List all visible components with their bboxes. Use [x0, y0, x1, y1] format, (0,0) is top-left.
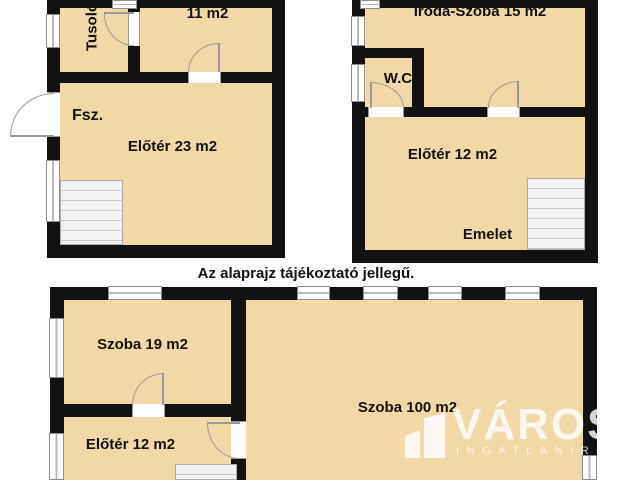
wall-segment	[272, 0, 285, 258]
floor-label-emelet: Emelet	[425, 226, 550, 243]
window	[582, 455, 597, 480]
window	[428, 286, 462, 300]
door-arc	[10, 93, 54, 136]
door-opening	[132, 404, 165, 417]
room-label-eloter12-upper: Előtér 12 m2	[370, 146, 535, 163]
floor-label-fsz: Fsz.	[72, 107, 103, 125]
wall-segment	[47, 72, 285, 83]
room-label-konyha-area: 11 m2	[140, 5, 275, 22]
door-leaf	[104, 12, 134, 14]
door-opening	[368, 107, 404, 117]
window	[351, 16, 365, 46]
window	[351, 64, 365, 102]
door-leaf	[207, 422, 240, 424]
room-label-tusolo: Tusoló	[84, 3, 101, 51]
room-label-iroda: Iroda-Szoba 15 m2	[365, 3, 595, 20]
buildings-icon-right	[424, 413, 445, 458]
door-leaf	[162, 373, 164, 405]
window	[46, 160, 60, 222]
room-label-szoba19: Szoba 19 m2	[60, 336, 225, 353]
window	[505, 286, 540, 300]
wall-segment	[585, 0, 598, 263]
window	[297, 286, 330, 300]
room-label-konyha: Étkező-Konyha 11 m2	[140, 0, 275, 22]
wall-segment	[47, 245, 285, 258]
window	[108, 286, 162, 300]
door-leaf	[218, 43, 220, 72]
room-label-eloter23: Előtér 23 m2	[95, 138, 250, 155]
window	[363, 286, 398, 300]
stairs	[175, 464, 237, 480]
door-opening	[487, 107, 520, 117]
room-label-eloter12-attic: Előtér 12 m2	[48, 436, 213, 453]
window	[112, 0, 137, 9]
door-opening	[188, 72, 221, 83]
disclaimer-text: Az alaprajz tájékoztató jellegű.	[0, 265, 612, 282]
room-label-wc: W.C.	[370, 70, 430, 87]
window	[46, 14, 60, 48]
stairs	[60, 180, 123, 245]
watermark-subtitle: INGATLANIRODA	[456, 445, 640, 457]
door-leaf	[517, 81, 519, 108]
door-leaf	[10, 135, 54, 137]
watermark-brand: VÁROS	[452, 400, 618, 450]
wall-segment	[352, 250, 598, 263]
floorplan-image: Tusoló Étkező-Konyha 11 m2 Fsz. Előtér 2…	[0, 0, 640, 480]
